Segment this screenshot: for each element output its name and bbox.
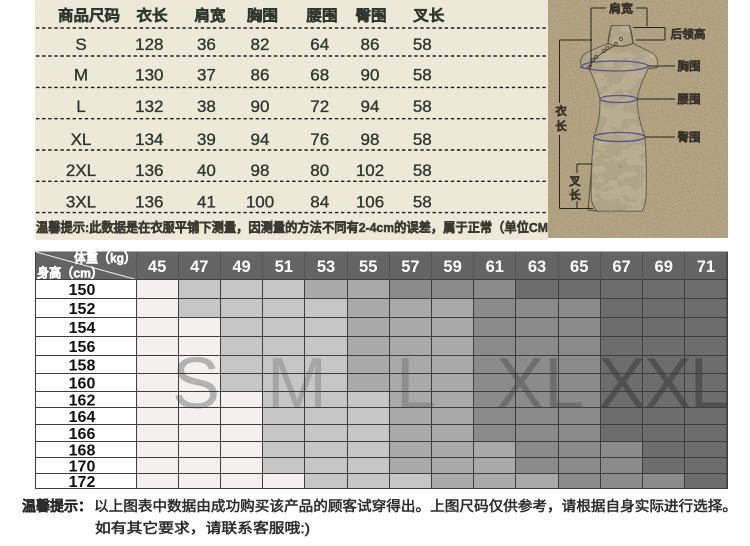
svg-text:温馨提示：: 温馨提示：: [22, 498, 92, 514]
svg-text:90: 90: [361, 65, 380, 84]
svg-text:体重（kg）: 体重（kg）: [74, 250, 136, 265]
svg-text:40: 40: [197, 161, 216, 180]
svg-text:63: 63: [528, 258, 546, 276]
svg-text:57: 57: [401, 258, 419, 276]
svg-text:90: 90: [251, 97, 270, 116]
svg-text:59: 59: [443, 258, 461, 276]
svg-text:L: L: [76, 97, 85, 116]
svg-text:商品尺码: 商品尺码: [58, 6, 120, 24]
svg-text:98: 98: [251, 161, 270, 180]
svg-text:39: 39: [197, 130, 216, 149]
svg-text:如有其它要求，请联系客服哦:): 如有其它要求，请联系客服哦:): [95, 520, 310, 536]
svg-text:94: 94: [361, 97, 380, 116]
svg-text:132: 132: [135, 97, 163, 116]
svg-text:47: 47: [190, 258, 208, 276]
svg-text:叉长: 叉长: [412, 6, 445, 24]
svg-text:136: 136: [135, 161, 163, 180]
svg-text:58: 58: [413, 130, 432, 149]
svg-text:102: 102: [356, 161, 384, 180]
svg-text:156: 156: [69, 339, 96, 356]
svg-text:3XL: 3XL: [66, 192, 96, 211]
svg-text:2XL: 2XL: [66, 161, 96, 180]
svg-text:37: 37: [197, 65, 216, 84]
svg-text:58: 58: [413, 97, 432, 116]
svg-text:134: 134: [135, 130, 163, 149]
svg-text:166: 166: [69, 426, 96, 443]
svg-text:以上图表中数据由成功购买该产品的顾客试穿得出。上图尺码仅供参: 以上图表中数据由成功购买该产品的顾客试穿得出。上图尺码仅供参考，请根据自身实际进…: [94, 498, 737, 514]
svg-text:170: 170: [69, 458, 96, 475]
svg-text:136: 136: [135, 192, 163, 211]
svg-text:130: 130: [135, 65, 163, 84]
svg-text:衣长: 衣长: [137, 6, 169, 24]
svg-text:叉: 叉: [568, 175, 581, 188]
svg-text:腰围: 腰围: [305, 7, 337, 24]
svg-text:胸围: 胸围: [678, 59, 701, 73]
svg-text:58: 58: [413, 35, 432, 54]
svg-text:69: 69: [655, 258, 673, 276]
svg-text:M: M: [74, 65, 88, 84]
svg-text:58: 58: [413, 65, 432, 84]
svg-text:腰围: 腰围: [677, 92, 701, 106]
svg-text:106: 106: [356, 192, 384, 211]
svg-text:158: 158: [69, 357, 96, 374]
svg-text:胸围: 胸围: [247, 6, 278, 24]
svg-text:82: 82: [251, 35, 270, 54]
svg-text:152: 152: [69, 301, 96, 318]
svg-text:164: 164: [69, 409, 96, 426]
svg-text:臀围: 臀围: [356, 6, 387, 24]
svg-text:身高（cm）: 身高（cm）: [37, 265, 103, 280]
svg-text:38: 38: [197, 97, 216, 116]
svg-text:80: 80: [310, 161, 329, 180]
svg-text:36: 36: [197, 35, 216, 54]
svg-text:68: 68: [310, 65, 329, 84]
svg-text:XL: XL: [71, 130, 92, 149]
svg-text:长: 长: [569, 188, 581, 202]
svg-text:肩宽: 肩宽: [609, 2, 634, 16]
svg-text:肩宽: 肩宽: [195, 6, 226, 24]
svg-text:后领高: 后领高: [671, 27, 706, 41]
svg-text:84: 84: [310, 192, 329, 211]
svg-text:64: 64: [310, 35, 329, 54]
svg-text:61: 61: [486, 258, 504, 276]
svg-text:58: 58: [413, 192, 432, 211]
svg-text:94: 94: [251, 130, 270, 149]
svg-text:98: 98: [361, 130, 380, 149]
svg-text:45: 45: [148, 258, 166, 276]
svg-text:76: 76: [310, 130, 329, 149]
svg-text:长: 长: [555, 119, 567, 133]
svg-text:41: 41: [197, 192, 216, 211]
svg-text:100: 100: [246, 192, 274, 211]
svg-text:67: 67: [612, 258, 630, 276]
svg-text:86: 86: [251, 65, 270, 84]
svg-text:150: 150: [69, 282, 96, 299]
svg-text:168: 168: [69, 442, 96, 459]
svg-text:58: 58: [413, 161, 432, 180]
svg-text:臀围: 臀围: [678, 131, 701, 144]
svg-text:温馨提示:此数据是在衣服平铺下测量，因测量的方法不同有2-4: 温馨提示:此数据是在衣服平铺下测量，因测量的方法不同有2-4cm的误差，属于正常…: [36, 220, 548, 235]
svg-text:86: 86: [361, 35, 380, 54]
svg-text:128: 128: [135, 35, 163, 54]
svg-text:65: 65: [570, 258, 588, 276]
svg-text:S: S: [75, 35, 86, 54]
svg-text:162: 162: [69, 392, 96, 409]
svg-text:154: 154: [69, 320, 96, 337]
svg-text:72: 72: [310, 97, 329, 116]
svg-text:衣: 衣: [555, 104, 567, 118]
svg-text:49: 49: [232, 258, 250, 276]
svg-text:53: 53: [317, 258, 335, 276]
svg-text:51: 51: [275, 258, 293, 276]
svg-text:71: 71: [697, 258, 715, 276]
svg-text:160: 160: [69, 375, 96, 392]
svg-text:55: 55: [359, 258, 377, 276]
